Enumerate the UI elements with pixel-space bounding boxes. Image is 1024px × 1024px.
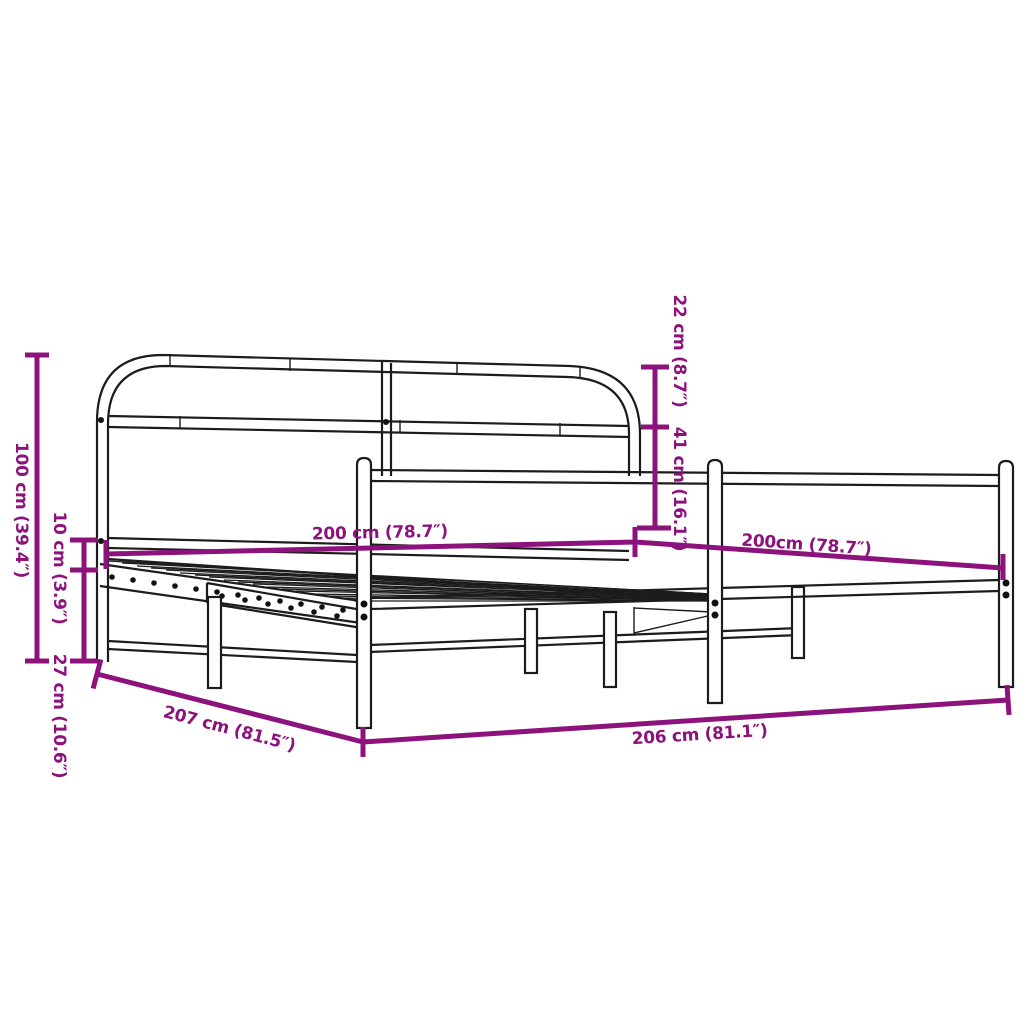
- dimension-frame-and-clearance: 10 cm (3.9″) 27 cm (10.6″): [49, 512, 98, 779]
- center-leg-1: [525, 609, 537, 673]
- center-leg-2: [604, 612, 616, 687]
- dimension-diagram: 100 cm (39.4″) 10 cm (3.9″) 27 cm (10.6″…: [0, 0, 1024, 1024]
- dimension-label-frame-top: 10 cm (3.9″): [49, 512, 69, 625]
- bed-frame-diagram-svg: 100 cm (39.4″) 10 cm (3.9″) 27 cm (10.6″…: [0, 0, 1024, 1024]
- left-brace: [108, 641, 357, 662]
- dimension-label-length: 200 cm (78.7″): [312, 521, 448, 544]
- headboard-mid-rail: [108, 416, 629, 437]
- footboard-center-post: [708, 460, 722, 703]
- dimension-outer-width: 206 cm (81.1″): [363, 685, 1009, 749]
- bolt: [361, 614, 368, 621]
- dimension-label-headboard-height: 100 cm (39.4″): [11, 442, 31, 578]
- bed-frame-drawing: [97, 354, 1013, 728]
- dimension-label-top-gap: 22 cm (8.7″): [669, 295, 689, 408]
- headboard-front-leg: [208, 597, 221, 688]
- bolt: [98, 538, 104, 544]
- bolt: [383, 419, 389, 425]
- footboard-left-post: [357, 458, 371, 728]
- dimension-headboard-rails: 22 cm (8.7″) 41 cm (16.1″): [637, 295, 689, 552]
- headboard-center-bar: [382, 362, 391, 476]
- bolt: [361, 601, 368, 608]
- bolt: [712, 600, 719, 607]
- slats: [108, 561, 712, 601]
- right-brace: [370, 628, 800, 652]
- dimension-label-mid: 41 cm (16.1″): [669, 427, 689, 551]
- bolt: [1003, 592, 1010, 599]
- bolt: [1003, 580, 1010, 587]
- bolt: [712, 612, 719, 619]
- dimension-headboard-height: 100 cm (39.4″): [11, 355, 49, 661]
- dimension-label-clearance: 27 cm (10.6″): [49, 654, 69, 778]
- bolt: [98, 417, 104, 423]
- diagonal-braces: [634, 607, 712, 634]
- slatted-base: [100, 559, 714, 628]
- dimension-mattress-width: 200cm (78.7″): [635, 530, 1003, 580]
- dimension-outer-length: 207 cm (81.5″): [93, 660, 363, 757]
